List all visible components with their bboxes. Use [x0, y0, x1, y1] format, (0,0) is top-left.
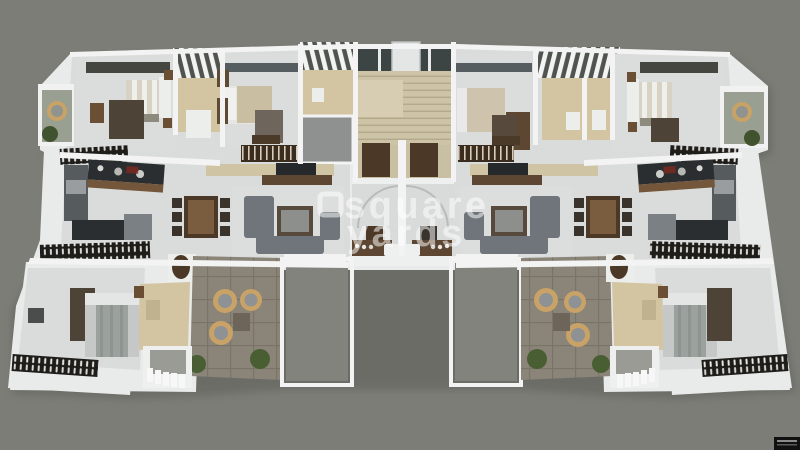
- svg-text:yards: yards: [347, 213, 466, 255]
